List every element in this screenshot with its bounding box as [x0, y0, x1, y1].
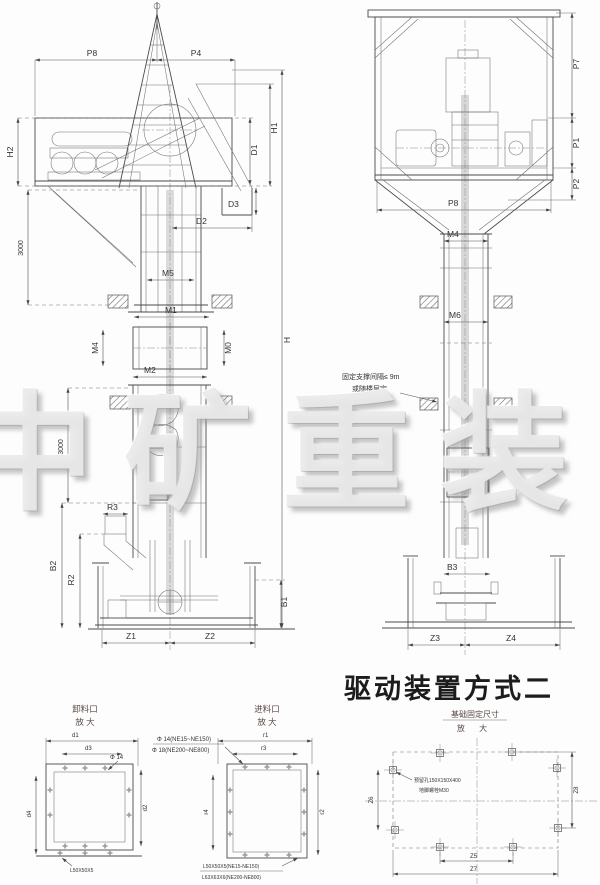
dim-label-dd3: d3: [85, 746, 92, 752]
dim-label-d2: D2: [196, 216, 207, 226]
dim-label-r3: R3: [107, 502, 118, 512]
dim-label-p1: P1: [571, 138, 581, 149]
dim-label-r2: R2: [66, 574, 76, 585]
hole-note-line1: Φ 14(NE15~NE150): [157, 737, 211, 743]
dim-label-3000-lower: 3000: [58, 439, 65, 455]
dim-label-z2: Z2: [205, 631, 215, 641]
drawing-title: 驱动装置方式二: [344, 673, 554, 704]
feed-note-line2: L63X63X6(NE200-NE800): [202, 875, 261, 881]
dim-label-m2: M2: [144, 365, 156, 375]
side-view-drawing: P7 P1 P2 P8 M4 M6 固定支撑间隔≤ 9m 或随楼层定 B3 Z3…: [342, 10, 581, 655]
dim-label-m0: M0: [223, 342, 233, 354]
dim-label-z5: Z5: [470, 854, 478, 860]
dim-label-z8: Z8: [574, 786, 580, 794]
feed-note-line1: L50X50X5(NE15-NE150): [203, 864, 259, 870]
support-note-line1: 固定支撑间隔≤ 9m: [342, 372, 400, 381]
dim-label-m6: M6: [449, 310, 461, 320]
foundation-title: 基础固定尺寸: [451, 709, 499, 719]
dim-label-z7: Z7: [470, 867, 478, 873]
dim-label-b3: B3: [447, 562, 458, 572]
dim-label-d3: D3: [228, 199, 239, 209]
discharge-angle-note: L50X50X5: [70, 868, 94, 874]
dim-label-r1: R1: [141, 480, 152, 490]
feed-title: 进料口: [254, 704, 280, 714]
feed-detail: 进料口 放 大 r1 r3 r4 r2 L50X50X5(NE15-NE150)…: [200, 704, 326, 881]
dim-label-p2: P2: [571, 179, 581, 190]
dim-label-m1: M1: [165, 305, 177, 315]
dim-label-b1: B1: [279, 597, 289, 608]
dim-label-z4: Z4: [506, 633, 516, 643]
dim-label-fr4: r4: [204, 809, 210, 815]
dim-label-dd2: d2: [143, 804, 149, 811]
dim-label-m5: M5: [162, 268, 174, 278]
front-view-drawing: P8 P4 H2 H1 D1 D3 D2 M5 3000 M1 M4 M0 M2…: [5, 2, 295, 650]
dim-label-d1: D1: [249, 144, 259, 155]
foundation-note-line1: 预留孔150X150X400: [414, 777, 461, 784]
dim-label-fr2: r2: [320, 809, 326, 815]
discharge-detail: 卸料口 放 大 d1 d3 Φ 14 d4 d2 L50X50X5: [27, 704, 149, 874]
discharge-subtitle: 放 大: [75, 717, 95, 727]
dim-label-fr1: r1: [263, 733, 269, 739]
dim-label-m4-front: M4: [90, 342, 100, 354]
dim-label-dd1: d1: [72, 733, 79, 739]
dim-label-h1: H1: [269, 122, 279, 133]
dim-label-b2: B2: [48, 561, 58, 572]
dim-label-z1: Z1: [126, 631, 136, 641]
dim-label-p8-side: P8: [448, 198, 459, 208]
dim-label-fr3: r3: [261, 746, 267, 752]
dim-label-h: H: [282, 337, 292, 343]
dim-label-m4-side: M4: [447, 229, 459, 239]
dim-label-3000-upper: 3000: [18, 240, 25, 256]
dim-label-p4: P4: [191, 48, 202, 58]
drawing-sheet: P8 P4 H2 H1 D1 D3 D2 M5 3000 M1 M4 M0 M2…: [0, 0, 600, 885]
foundation-subtitle: 放 大: [457, 723, 493, 733]
discharge-hole-label: Φ 14: [110, 755, 124, 761]
support-note-line2: 或随楼层定: [352, 384, 387, 393]
dim-label-h2: H2: [5, 146, 15, 157]
foundation-note-line2: 地脚螺栓M30: [419, 787, 449, 794]
feed-subtitle: 放 大: [257, 717, 277, 727]
foundation-detail: 基础固定尺寸 放 大 Z6 Z8 Z5 Z7 预留孔150X150X400 地脚…: [365, 709, 598, 884]
drawing-svg: P8 P4 H2 H1 D1 D3 D2 M5 3000 M1 M4 M0 M2…: [0, 0, 600, 885]
dim-label-p8-front: P8: [87, 48, 98, 58]
dim-label-z6: Z6: [369, 796, 375, 804]
hole-note-line2: Φ 18(NE200~NE800): [152, 748, 209, 754]
discharge-title: 卸料口: [72, 704, 98, 714]
dim-label-z3: Z3: [430, 633, 440, 643]
dim-label-p7: P7: [571, 59, 581, 70]
dim-label-dd4: d4: [27, 810, 33, 817]
